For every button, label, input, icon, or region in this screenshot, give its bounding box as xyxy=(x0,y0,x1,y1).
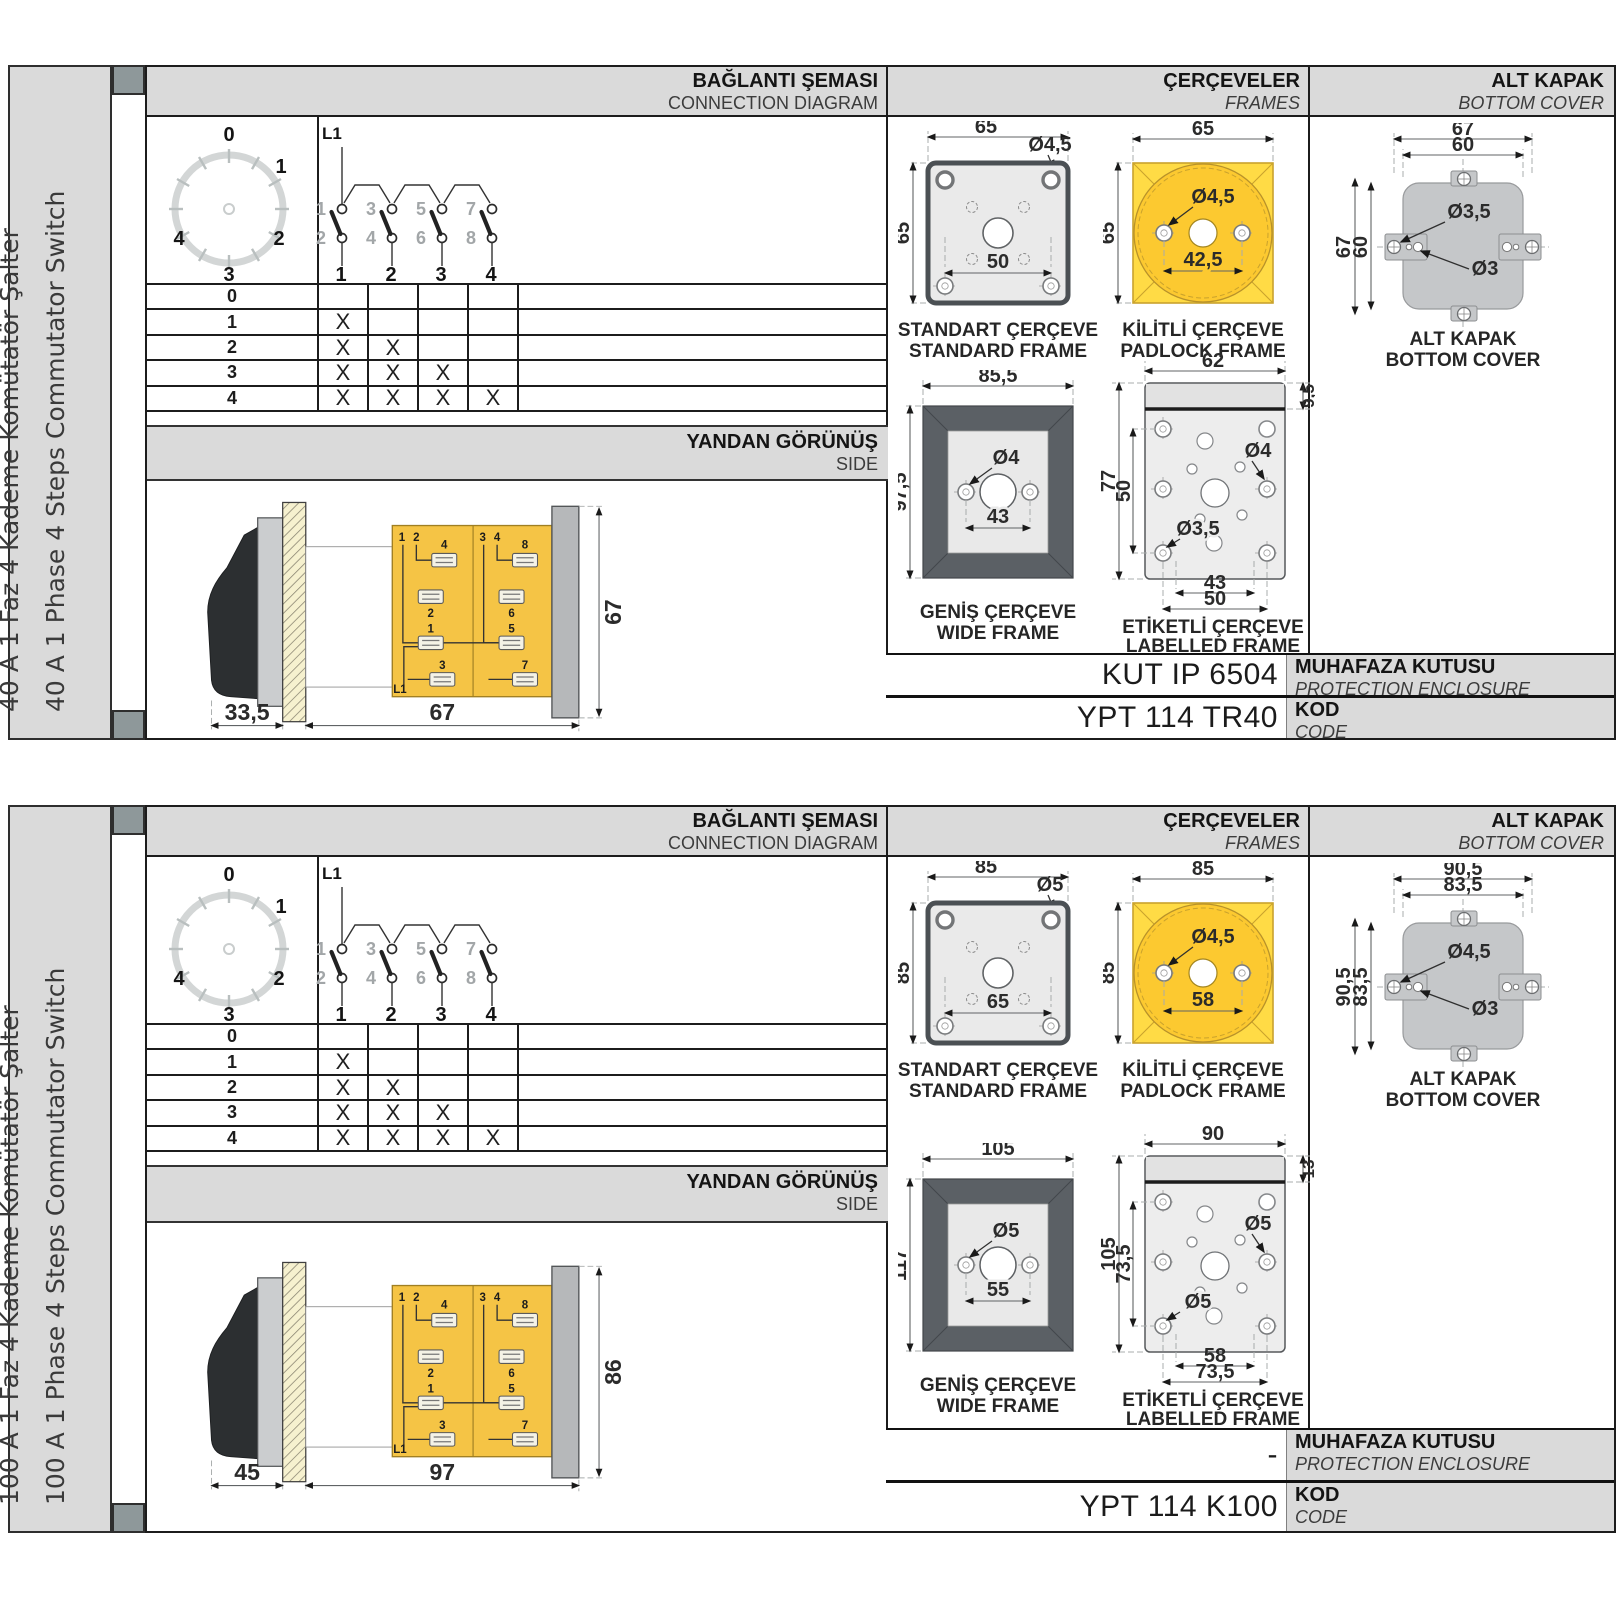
dim-tab-hole: Ø3,5 xyxy=(1447,201,1490,223)
mark-cell xyxy=(369,1025,419,1048)
dial-pos-0: 0 xyxy=(223,864,234,886)
cover-title-tr: ALT KAPAK xyxy=(1410,329,1517,350)
dim-height: 97,5 xyxy=(898,473,911,512)
terminal-group-label: 1 xyxy=(399,532,406,544)
table-row: 3 X X X xyxy=(147,359,888,384)
dim-inner-height: 73,5 xyxy=(1113,1245,1135,1284)
mark-cell: X xyxy=(469,1127,519,1150)
dim-inner-height: 60 xyxy=(1350,236,1372,258)
table-filler xyxy=(519,1025,888,1048)
header-connection-tr: BAĞLANTI ŞEMASI xyxy=(147,809,878,833)
pole-3: 3 xyxy=(435,1004,446,1023)
terminal-group-label: 4 xyxy=(494,532,501,544)
header-bottom-cover: ALT KAPAK BOTTOM COVER xyxy=(1310,67,1614,117)
step-label: 3 xyxy=(147,361,319,384)
mark-cell: X xyxy=(319,1050,369,1073)
frame-title-tr: STANDART ÇERÇEVE xyxy=(898,1060,1098,1081)
binder-mark-top xyxy=(112,805,145,835)
table-row: 0 xyxy=(147,1025,888,1048)
table-row: 4 X X X X xyxy=(147,385,888,410)
mark-cell: X xyxy=(319,361,369,384)
terminal-label: 5 xyxy=(508,1383,515,1395)
terminal-label: 7 xyxy=(522,1420,528,1432)
dial-pos-4: 4 xyxy=(173,228,185,250)
frame-title-tr: STANDART ÇERÇEVE xyxy=(898,320,1098,341)
dial-pos-1: 1 xyxy=(275,156,286,178)
dim-height: 117 xyxy=(898,1249,911,1281)
header-side-view: YANDAN GÖRÜNÜŞ SIDE xyxy=(147,1165,888,1223)
header-connection-diagram: BAĞLANTI ŞEMASI CONNECTION DIAGRAM xyxy=(147,67,888,117)
header-frames-en: FRAMES xyxy=(888,833,1300,854)
mark-cell xyxy=(419,1025,469,1048)
table-row: 4 X X X X xyxy=(147,1125,888,1150)
terminal-label: 6 xyxy=(508,1368,514,1380)
dim-height: 85 xyxy=(1103,962,1119,984)
mark-cell xyxy=(419,336,469,359)
contact-5: 5 xyxy=(416,199,426,219)
product-panel-40a: 40 A 1 Faz 4 Kademe Komütatör Şalter 40 … xyxy=(8,65,1616,740)
mark-cell xyxy=(469,336,519,359)
catalog-page: 40 A 1 Faz 4 Kademe Komütatör Şalter 40 … xyxy=(0,0,1623,1623)
bottom-cover-drawing: 90,5 83,5 90,5 83,5 Ø4,5 Ø3 ALT KAPAK BO… xyxy=(1317,863,1607,1115)
dial-pos-0: 0 xyxy=(223,124,234,146)
table-row: 2 X X xyxy=(147,1074,888,1099)
header-frames: ÇERÇEVELER FRAMES xyxy=(888,67,1310,117)
code-label-tr: KOD xyxy=(1295,699,1614,722)
dim-inner-height: 50 xyxy=(1113,480,1135,502)
step-label: 4 xyxy=(147,387,319,410)
pole-1: 1 xyxy=(335,1004,346,1023)
table-filler xyxy=(519,387,888,410)
mark-cell xyxy=(469,361,519,384)
side-view-tr: YANDAN GÖRÜNÜŞ xyxy=(147,1170,878,1194)
dial-pos-2: 2 xyxy=(273,228,284,250)
header-connection-en: CONNECTION DIAGRAM xyxy=(147,93,878,114)
phase-label: L1 xyxy=(322,124,342,143)
header-bottom-cover: ALT KAPAK BOTTOM COVER xyxy=(1310,807,1614,857)
terminal-label: 2 xyxy=(428,608,434,620)
step-label: 3 xyxy=(147,1101,319,1124)
wide-frame-drawing: 85,5 Ø4 43 97,5 GENİŞ ÇERÇEVE WIDE FRAME xyxy=(898,370,1098,655)
dim-hole-centers: 65 xyxy=(987,991,1009,1013)
dim-hole-centers: 42,5 xyxy=(1184,249,1223,271)
pole-2: 2 xyxy=(385,1004,396,1023)
switching-table: 0 1 X 2 X X xyxy=(147,1023,888,1152)
table-row: 2 X X xyxy=(147,334,888,359)
enclosure-label: MUHAFAZA KUTUSU PROTECTION ENCLOSURE xyxy=(1286,1430,1614,1480)
padlock-frame-drawing: 85 Ø4,5 58 85 KİLİTLİ ÇERÇEVE PADLOCK FR… xyxy=(1103,861,1303,1113)
pole-4: 4 xyxy=(485,1004,497,1023)
enclosure-row: KUT IP 6504 MUHAFAZA KUTUSU PROTECTION E… xyxy=(886,653,1614,695)
terminal-group-label: 1 xyxy=(399,1292,406,1304)
frame-title-en: WIDE FRAME xyxy=(937,623,1059,644)
side-view-en: SIDE xyxy=(147,454,878,475)
table-row: 0 xyxy=(147,285,888,308)
end-plate xyxy=(552,1266,579,1478)
dim-hole-right: Ø4 xyxy=(1245,440,1273,462)
terminal-group-label: 2 xyxy=(413,1292,419,1304)
contact-diagram: L1 1 3 5 7 2 4 6 8 1 xyxy=(304,117,874,283)
binder-strip xyxy=(112,65,145,740)
cover-title-en: BOTTOM COVER xyxy=(1386,350,1541,371)
mark-cell xyxy=(469,1076,519,1099)
dim-width: 85 xyxy=(975,861,997,878)
handle-bezel xyxy=(258,1278,283,1466)
frame-title-en: WIDE FRAME xyxy=(937,1396,1059,1417)
header-cover-tr: ALT KAPAK xyxy=(1310,69,1604,93)
contact-7: 7 xyxy=(466,939,476,959)
frame-title-en: STANDARD FRAME xyxy=(909,1081,1087,1102)
mark-cell xyxy=(369,1050,419,1073)
product-sidebar: 40 A 1 Faz 4 Kademe Komütatör Şalter 40 … xyxy=(8,65,112,740)
pole-3: 3 xyxy=(435,264,446,283)
dim-hole: Ø4,5 xyxy=(1191,186,1234,208)
dim-width: 85 xyxy=(1192,861,1214,880)
header-cover-tr: ALT KAPAK xyxy=(1310,809,1604,833)
panel-content: BAĞLANTI ŞEMASI CONNECTION DIAGRAM ÇERÇE… xyxy=(145,65,1616,740)
dim-inner-width: 60 xyxy=(1452,134,1474,156)
header-connection-tr: BAĞLANTI ŞEMASI xyxy=(147,69,878,93)
contact-4: 4 xyxy=(366,968,376,988)
contact-5: 5 xyxy=(416,939,426,959)
table-row: 1 X xyxy=(147,308,888,333)
table-filler xyxy=(519,1101,888,1124)
table-filler xyxy=(519,1127,888,1150)
dial-pos-1: 1 xyxy=(275,896,286,918)
header-cover-en: BOTTOM COVER xyxy=(1310,93,1604,114)
mark-cell: X xyxy=(319,1127,369,1150)
terminal-label: 7 xyxy=(522,660,528,672)
dim-hole: Ø4,5 xyxy=(1028,134,1071,156)
terminal-label: 6 xyxy=(508,608,514,620)
product-title-turkish: 100 A 1 Faz 4 Kademe Komütatör Şalter xyxy=(0,1005,24,1505)
dim-hole-centers: 58 xyxy=(1192,989,1214,1011)
shaft xyxy=(306,547,393,687)
contact-1: 1 xyxy=(316,199,326,219)
terminal-group-label: 2 xyxy=(413,532,419,544)
dim-hole: Ø4 xyxy=(993,447,1021,469)
binder-mark-top xyxy=(112,65,145,95)
step-label: 2 xyxy=(147,336,319,359)
terminal-label: 8 xyxy=(522,1300,529,1312)
side-view-en: SIDE xyxy=(147,1194,878,1215)
header-frames-tr: ÇERÇEVELER xyxy=(888,69,1300,93)
labelled-frame-drawing: 90 13 Ø5 Ø5 105 73,5 xyxy=(1100,1126,1315,1428)
binder-strip xyxy=(112,805,145,1533)
mounting-plate xyxy=(283,1262,306,1481)
dim-small-hole: Ø3 xyxy=(1472,258,1499,280)
terminal-group-label: 4 xyxy=(494,1292,501,1304)
dial-pos-2: 2 xyxy=(273,968,284,990)
mark-cell: X xyxy=(319,1101,369,1124)
dim-inner-width: 83,5 xyxy=(1444,874,1483,896)
dim-tab-hole: Ø4,5 xyxy=(1447,941,1490,963)
contact-1: 1 xyxy=(316,939,326,959)
dim-body-depth: 97 xyxy=(429,1459,455,1485)
terminal-group-label: 3 xyxy=(479,1292,485,1304)
dim-band: 13 xyxy=(1299,1160,1315,1179)
dim-hole: Ø4,5 xyxy=(1191,926,1234,948)
switch-handle xyxy=(208,1287,258,1458)
dim-body-depth: 67 xyxy=(429,699,455,725)
switch-handle xyxy=(208,527,258,698)
mark-cell: X xyxy=(319,310,369,333)
mark-cell xyxy=(369,285,419,308)
mark-cell: X xyxy=(319,336,369,359)
mark-cell xyxy=(369,310,419,333)
dim-width: 105 xyxy=(981,1143,1014,1160)
dim-band: 9,5 xyxy=(1299,384,1315,408)
step-label: 0 xyxy=(147,1025,319,1048)
header-connection-diagram: BAĞLANTI ŞEMASI CONNECTION DIAGRAM xyxy=(147,807,888,857)
code-value: YPT 114 TR40 xyxy=(886,698,1286,738)
dim-height: 65 xyxy=(898,222,914,244)
dim-hole: Ø5 xyxy=(1037,874,1064,896)
header-frames: ÇERÇEVELER FRAMES xyxy=(888,807,1310,857)
header-side-view: YANDAN GÖRÜNÜŞ SIDE xyxy=(147,425,888,481)
standard-frame-drawing: 85 Ø5 85 65 STANDART ÇERÇEVE STANDARD FR… xyxy=(898,861,1098,1113)
mark-cell xyxy=(319,285,369,308)
code-label-tr: KOD xyxy=(1295,1484,1614,1507)
mark-cell xyxy=(419,1076,469,1099)
end-plate xyxy=(552,506,579,718)
mark-cell: X xyxy=(369,1127,419,1150)
terminal-label: 8 xyxy=(522,540,529,552)
header-cover-en: BOTTOM COVER xyxy=(1310,833,1604,854)
code-row: YPT 114 TR40 KOD CODE xyxy=(886,695,1614,738)
product-title-english: 100 A 1 Phase 4 Steps Commutator Switch xyxy=(41,968,70,1505)
cover-title-en: BOTTOM COVER xyxy=(1386,1090,1541,1111)
dim-hole-inner: Ø3,5 xyxy=(1176,518,1219,540)
mark-cell xyxy=(469,1050,519,1073)
mark-cell xyxy=(469,285,519,308)
table-row: 3 X X X xyxy=(147,1099,888,1124)
frame-title-en: STANDARD FRAME xyxy=(909,341,1087,362)
pole-1: 1 xyxy=(335,264,346,283)
side-view-tr: YANDAN GÖRÜNÜŞ xyxy=(147,430,878,454)
step-label: 0 xyxy=(147,285,319,308)
side-view-drawing: 1 2 3 4 4 2 1 3 8 6 5 7 L1 86 45 97 xyxy=(155,1249,895,1499)
mark-cell: X xyxy=(369,1076,419,1099)
phase-label: L1 xyxy=(322,864,342,883)
enclosure-value: KUT IP 6504 xyxy=(886,655,1286,695)
table-filler xyxy=(519,361,888,384)
terminal-label: 1 xyxy=(428,623,435,635)
handle-bezel xyxy=(258,518,283,706)
dim-height: 85 xyxy=(898,962,914,984)
phase-label: L1 xyxy=(393,684,407,696)
dim-hole-centers: 55 xyxy=(987,1279,1009,1301)
terminal-group-label: 3 xyxy=(479,532,485,544)
frame-title-tr: ETİKETLİ ÇERÇEVE xyxy=(1122,617,1304,638)
standard-frame-drawing: 65 Ø4,5 65 50 STANDART ÇERÇEVE STANDARD … xyxy=(898,121,1098,373)
dim-hole: Ø5 xyxy=(993,1220,1020,1242)
binder-mark-bottom xyxy=(112,710,145,740)
frame-title-en: PADLOCK FRAME xyxy=(1120,1081,1285,1102)
contact-4: 4 xyxy=(366,228,376,248)
mark-cell xyxy=(419,310,469,333)
dim-hole-centers: 50 xyxy=(987,251,1009,273)
product-title-turkish: 40 A 1 Faz 4 Kademe Komütatör Şalter xyxy=(0,228,24,712)
contact-3: 3 xyxy=(366,939,376,959)
dim-width: 62 xyxy=(1202,353,1224,372)
phase-label: L1 xyxy=(393,1444,407,1456)
frame-title-tr: KİLİTLİ ÇERÇEVE xyxy=(1122,320,1284,341)
dim-inner-height: 83,5 xyxy=(1350,968,1372,1007)
contact-7: 7 xyxy=(466,199,476,219)
binder-mark-bottom xyxy=(112,1503,145,1533)
dim-hole-inner: Ø5 xyxy=(1185,1291,1212,1313)
dim-small-hole: Ø3 xyxy=(1472,998,1499,1020)
mark-cell xyxy=(469,1101,519,1124)
code-label: KOD CODE xyxy=(1286,1483,1614,1531)
mark-cell xyxy=(419,1050,469,1073)
mark-cell xyxy=(469,1025,519,1048)
terminal-label: 4 xyxy=(441,540,448,552)
code-label-en: CODE xyxy=(1295,722,1614,743)
mark-cell: X xyxy=(419,1101,469,1124)
table-filler xyxy=(519,336,888,359)
dim-height: 65 xyxy=(1103,222,1119,244)
contact-8: 8 xyxy=(466,228,476,248)
cover-title-tr: ALT KAPAK xyxy=(1410,1069,1517,1090)
enclosure-row: - MUHAFAZA KUTUSU PROTECTION ENCLOSURE xyxy=(886,1428,1614,1480)
contact-diagram: L1 1 3 5 7 2 4 6 8 1 xyxy=(304,857,874,1023)
dim-front-depth: 45 xyxy=(234,1459,260,1485)
mark-cell: X xyxy=(469,387,519,410)
dim-width: 90 xyxy=(1202,1126,1224,1145)
contact-6: 6 xyxy=(416,968,426,988)
contact-6: 6 xyxy=(416,228,426,248)
pole-2: 2 xyxy=(385,264,396,283)
mark-cell: X xyxy=(369,1101,419,1124)
code-label-en: CODE xyxy=(1295,1507,1614,1528)
table-filler xyxy=(519,310,888,333)
switching-table: 0 1 X 2 X X xyxy=(147,283,888,412)
frame-title-tr: GENİŞ ÇERÇEVE xyxy=(920,602,1076,623)
frame-title-tr: KİLİTLİ ÇERÇEVE xyxy=(1122,1060,1284,1081)
table-filler xyxy=(519,285,888,308)
enclosure-label-tr: MUHAFAZA KUTUSU xyxy=(1295,656,1614,679)
mark-cell: X xyxy=(369,336,419,359)
labelled-frame-drawing: 62 9,5 Ø4 Ø3,5 77 50 xyxy=(1100,353,1315,655)
frame-title-tr: ETİKETLİ ÇERÇEVE xyxy=(1122,1390,1304,1411)
header-frames-tr: ÇERÇEVELER xyxy=(888,809,1300,833)
step-label: 2 xyxy=(147,1076,319,1099)
step-label: 1 xyxy=(147,310,319,333)
mounting-plate xyxy=(283,502,306,721)
table-row: 1 X xyxy=(147,1048,888,1073)
terminal-label: 3 xyxy=(439,660,445,672)
pole-4: 4 xyxy=(485,264,497,283)
terminal-label: 1 xyxy=(428,1383,435,1395)
dim-hole-right: Ø5 xyxy=(1245,1213,1272,1235)
mark-cell: X xyxy=(419,387,469,410)
table-filler xyxy=(519,1076,888,1099)
contact-2: 2 xyxy=(316,228,326,248)
dim-height: 86 xyxy=(600,1359,626,1385)
frame-title-en: LABELLED FRAME xyxy=(1126,1409,1300,1428)
terminal-label: 5 xyxy=(508,623,515,635)
switch-position-dial: 0 1 2 3 4 xyxy=(151,861,311,1027)
contact-8: 8 xyxy=(466,968,476,988)
switch-position-dial: 0 1 2 3 4 xyxy=(151,121,311,287)
enclosure-label-en: PROTECTION ENCLOSURE xyxy=(1295,1454,1614,1475)
enclosure-label: MUHAFAZA KUTUSU PROTECTION ENCLOSURE xyxy=(1286,655,1614,695)
table-filler xyxy=(519,1050,888,1073)
dim-height: 67 xyxy=(600,599,626,625)
product-panel-100a: 100 A 1 Faz 4 Kademe Komütatör Şalter 10… xyxy=(8,805,1616,1533)
enclosure-value: - xyxy=(886,1430,1286,1480)
dim-front-depth: 33,5 xyxy=(225,699,270,725)
mark-cell: X xyxy=(369,387,419,410)
bottom-cover-drawing: 67 60 67 60 Ø3,5 Ø3 ALT KAPAK BOTTOM COV… xyxy=(1317,123,1607,375)
dim-width: 85,5 xyxy=(979,370,1018,387)
enclosure-label-tr: MUHAFAZA KUTUSU xyxy=(1295,1431,1614,1454)
mark-cell: X xyxy=(319,1076,369,1099)
dim-width: 65 xyxy=(1192,121,1214,140)
dim-width: 65 xyxy=(975,121,997,138)
padlock-frame-drawing: 65 Ø4,5 42,5 65 KİLİTLİ ÇERÇEVE PADLOCK … xyxy=(1103,121,1303,373)
contact-3: 3 xyxy=(366,199,376,219)
contact-2: 2 xyxy=(316,968,326,988)
terminal-label: 2 xyxy=(428,1368,434,1380)
product-title-english: 40 A 1 Phase 4 Steps Commutator Switch xyxy=(41,191,70,712)
mark-cell: X xyxy=(419,361,469,384)
mark-cell xyxy=(319,1025,369,1048)
mark-cell: X xyxy=(419,1127,469,1150)
dim-cc2: 50 xyxy=(1204,588,1226,610)
frame-title-tr: GENİŞ ÇERÇEVE xyxy=(920,1375,1076,1396)
mark-cell: X xyxy=(369,361,419,384)
mark-cell: X xyxy=(319,387,369,410)
shaft xyxy=(306,1307,393,1447)
wide-frame-drawing: 105 Ø5 55 117 GENİŞ ÇERÇEVE WIDE FRAME xyxy=(898,1143,1098,1428)
header-frames-en: FRAMES xyxy=(888,93,1300,114)
step-label: 4 xyxy=(147,1127,319,1150)
side-view-drawing: 1 2 3 4 4 2 1 3 8 6 5 7 L1 67 33,5 67 xyxy=(155,489,895,739)
header-connection-en: CONNECTION DIAGRAM xyxy=(147,833,878,854)
code-label: KOD CODE xyxy=(1286,698,1614,738)
panel-content: BAĞLANTI ŞEMASI CONNECTION DIAGRAM ÇERÇE… xyxy=(145,805,1616,1533)
terminal-label: 3 xyxy=(439,1420,445,1432)
code-value: YPT 114 K100 xyxy=(886,1483,1286,1531)
dim-hole-centers: 43 xyxy=(987,506,1009,528)
mark-cell xyxy=(469,310,519,333)
step-label: 1 xyxy=(147,1050,319,1073)
mark-cell xyxy=(419,285,469,308)
code-row: YPT 114 K100 KOD CODE xyxy=(886,1480,1614,1531)
product-sidebar: 100 A 1 Faz 4 Kademe Komütatör Şalter 10… xyxy=(8,805,112,1533)
terminal-label: 4 xyxy=(441,1300,448,1312)
dial-pos-4: 4 xyxy=(173,968,185,990)
dim-cc2: 73,5 xyxy=(1196,1361,1235,1383)
